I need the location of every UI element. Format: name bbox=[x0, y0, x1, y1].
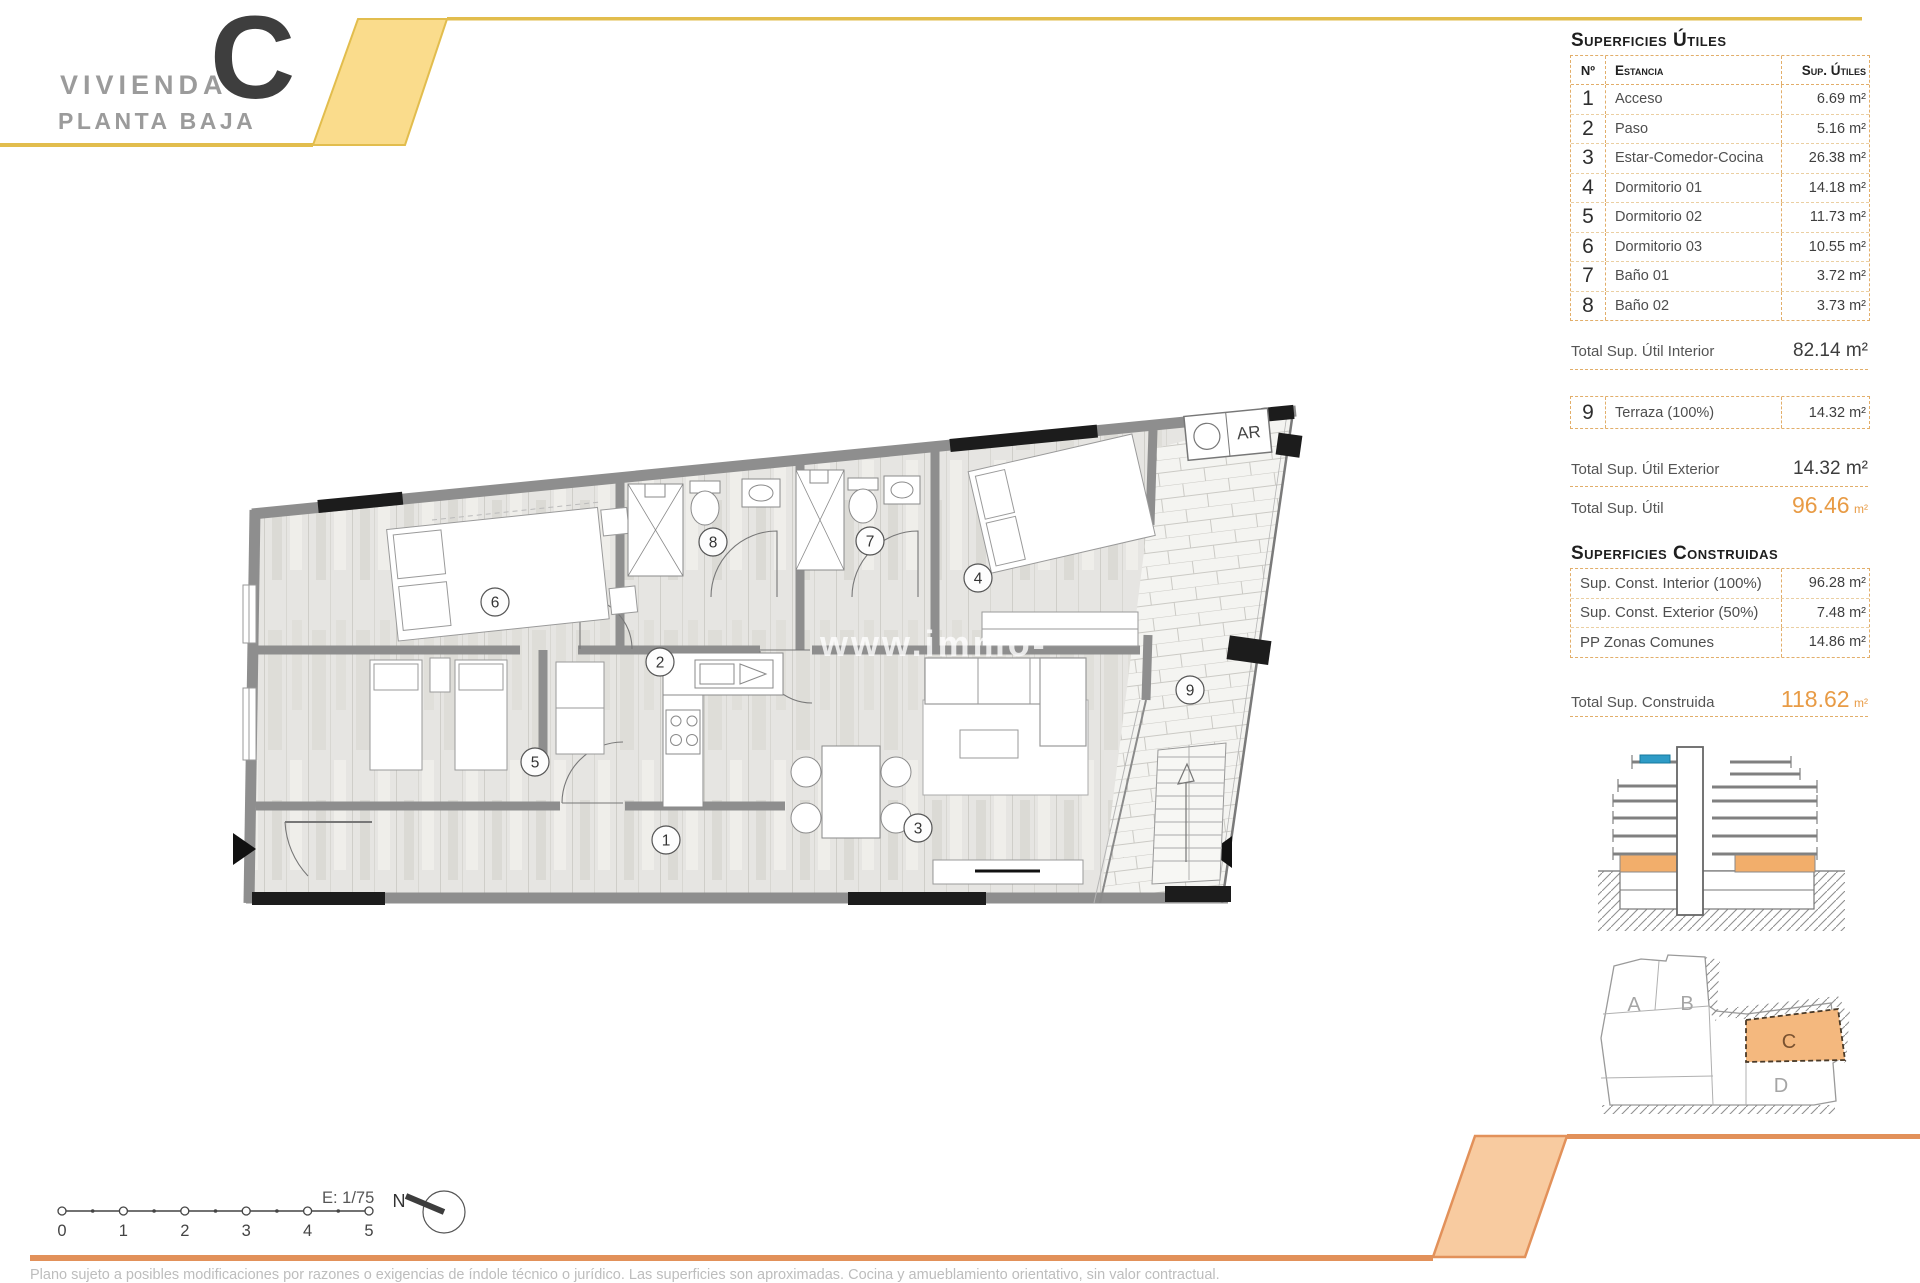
built-area: 14.86 m² bbox=[1781, 628, 1869, 657]
terrace-stairs bbox=[1152, 743, 1226, 884]
room-name: Estar-Comedor-Cocina bbox=[1606, 150, 1781, 166]
room-area: 14.18 m² bbox=[1781, 174, 1869, 203]
room-area: 14.32 m² bbox=[1781, 397, 1869, 428]
table-row: 2 Paso 5.16 m² bbox=[1571, 115, 1869, 145]
room-number: 7 bbox=[1571, 262, 1606, 291]
orange-right-line bbox=[1567, 1134, 1920, 1139]
room-area: 11.73 m² bbox=[1781, 203, 1869, 232]
left-tower-slabs bbox=[1613, 762, 1677, 854]
table-row: 6 Dormitorio 03 10.55 m² bbox=[1571, 233, 1869, 263]
total-built-row: Total Sup. Construida 118.62 m² bbox=[1571, 686, 1868, 713]
room-area: 3.73 m² bbox=[1781, 292, 1869, 321]
room-number: 9 bbox=[1571, 397, 1606, 428]
table-row: Sup. Const. Interior (100%) 96.28 m² bbox=[1571, 569, 1869, 599]
room-label-1: 1 bbox=[652, 826, 680, 854]
total-interior-label: Total Sup. Útil Interior bbox=[1571, 343, 1714, 360]
divider bbox=[1570, 369, 1868, 370]
table-row: 5 Dormitorio 02 11.73 m² bbox=[1571, 203, 1869, 233]
room-number: 8 bbox=[1571, 292, 1606, 321]
svg-text:2: 2 bbox=[180, 1222, 189, 1240]
built-table-title: Superficies Construidas bbox=[1571, 543, 1778, 565]
built-area: 7.48 m² bbox=[1781, 599, 1869, 628]
ar-label: AR bbox=[1236, 422, 1261, 443]
room-label-3: 3 bbox=[904, 814, 932, 842]
gold-underline bbox=[0, 143, 313, 147]
room-area: 6.69 m² bbox=[1781, 85, 1869, 114]
site-unit-a-label: A bbox=[1627, 994, 1641, 1016]
total-exterior-row: Total Sup. Útil Exterior 14.32 m² bbox=[1571, 458, 1868, 480]
site-unit-d-label: D bbox=[1774, 1075, 1788, 1097]
room-number: 4 bbox=[1571, 174, 1606, 203]
svg-text:3: 3 bbox=[914, 821, 923, 838]
table-row: 9 Terraza (100%) 14.32 m² bbox=[1571, 397, 1869, 428]
beds-room5 bbox=[370, 658, 604, 770]
svg-text:1: 1 bbox=[119, 1222, 128, 1240]
gold-top-line bbox=[447, 17, 1862, 21]
total-useful-value: 96.46 m² bbox=[1792, 492, 1868, 519]
core-shaft bbox=[1677, 747, 1703, 915]
svg-text:1: 1 bbox=[662, 833, 671, 850]
room-area: 10.55 m² bbox=[1781, 233, 1869, 262]
terrace-row-box: 9 Terraza (100%) 14.32 m² bbox=[1570, 396, 1870, 429]
room-number: 3 bbox=[1571, 144, 1606, 173]
built-name: Sup. Const. Interior (100%) bbox=[1571, 575, 1781, 592]
scale-label: E: 1/75 bbox=[322, 1189, 374, 1207]
col-num: Nº bbox=[1571, 56, 1606, 84]
total-exterior-value: 14.32 m² bbox=[1793, 458, 1868, 480]
floor-plan: AR www.immo- 1 2 3 4 5 6 7 8 9 bbox=[233, 405, 1302, 905]
orange-bottom-bar bbox=[30, 1255, 1433, 1261]
room-area: 5.16 m² bbox=[1781, 115, 1869, 144]
built-name: Sup. Const. Exterior (50%) bbox=[1571, 604, 1781, 621]
room-label-4: 4 bbox=[964, 564, 992, 592]
table-row: 8 Baño 02 3.73 m² bbox=[1571, 292, 1869, 321]
gold-parallelogram bbox=[313, 19, 447, 145]
room-label-9: 9 bbox=[1176, 676, 1204, 704]
compass-needle bbox=[406, 1196, 444, 1212]
table-row: 4 Dormitorio 01 14.18 m² bbox=[1571, 174, 1869, 204]
site-unit-c-label: C bbox=[1782, 1031, 1796, 1053]
total-built-value: 118.62 m² bbox=[1781, 686, 1868, 713]
room-name: Dormitorio 01 bbox=[1606, 180, 1781, 196]
room-name: Paso bbox=[1606, 121, 1781, 137]
useful-table: Nº Estancia Sup. Útiles 1 Acceso 6.69 m²… bbox=[1570, 55, 1870, 321]
highlight-floor-left bbox=[1620, 855, 1677, 872]
sofa-living bbox=[923, 658, 1088, 795]
svg-text:5: 5 bbox=[364, 1222, 373, 1240]
svg-text:4: 4 bbox=[303, 1222, 312, 1240]
svg-text:6: 6 bbox=[491, 595, 500, 612]
table-header: Nº Estancia Sup. Útiles bbox=[1571, 56, 1869, 85]
built-area: 96.28 m² bbox=[1781, 569, 1869, 598]
room-label-8: 8 bbox=[699, 528, 727, 556]
room-number: 6 bbox=[1571, 233, 1606, 262]
total-useful-row: Total Sup. Útil 96.46 m² bbox=[1571, 492, 1868, 519]
svg-text:0: 0 bbox=[57, 1222, 66, 1240]
site-plan: A B C D bbox=[1601, 955, 1850, 1114]
logo-title: VIVIENDA bbox=[60, 70, 228, 101]
svg-text:3: 3 bbox=[242, 1222, 251, 1240]
table-row: 1 Acceso 6.69 m² bbox=[1571, 85, 1869, 115]
table-row: Sup. Const. Exterior (50%) 7.48 m² bbox=[1571, 599, 1869, 629]
room-name: Acceso bbox=[1606, 91, 1781, 107]
col-room: Estancia bbox=[1606, 63, 1781, 78]
useful-table-title: Superficies Útiles bbox=[1571, 30, 1727, 52]
col-area: Sup. Útiles bbox=[1781, 56, 1869, 84]
total-interior-value: 82.14 m² bbox=[1793, 340, 1868, 362]
site-unit-b-label: B bbox=[1680, 993, 1693, 1015]
room-name: Dormitorio 02 bbox=[1606, 209, 1781, 225]
right-tower-ticks bbox=[1791, 756, 1817, 860]
room-name: Terraza (100%) bbox=[1606, 405, 1781, 421]
orange-parallelogram bbox=[1433, 1136, 1567, 1257]
building-section bbox=[1598, 747, 1845, 931]
watermark: www.immo- bbox=[819, 623, 1048, 664]
svg-text:2: 2 bbox=[656, 655, 665, 672]
total-built-label: Total Sup. Construida bbox=[1571, 694, 1714, 711]
table-row: 3 Estar-Comedor-Cocina 26.38 m² bbox=[1571, 144, 1869, 174]
room-name: Baño 02 bbox=[1606, 298, 1781, 314]
unit-letter: C bbox=[210, 10, 295, 107]
room-number: 1 bbox=[1571, 85, 1606, 114]
room-number: 5 bbox=[1571, 203, 1606, 232]
total-interior-row: Total Sup. Útil Interior 82.14 m² bbox=[1571, 340, 1868, 362]
room-number: 2 bbox=[1571, 115, 1606, 144]
room-label-7: 7 bbox=[856, 527, 884, 555]
table-row: PP Zonas Comunes 14.86 m² bbox=[1571, 628, 1869, 657]
scale-ticks: 0 1 2 3 4 5 bbox=[57, 1222, 373, 1240]
north-arrow: N bbox=[393, 1191, 466, 1233]
total-useful-label: Total Sup. Útil bbox=[1571, 500, 1664, 517]
divider bbox=[1570, 486, 1868, 487]
svg-text:8: 8 bbox=[709, 535, 718, 552]
right-tower-slabs bbox=[1712, 762, 1817, 854]
built-name: PP Zonas Comunes bbox=[1571, 634, 1781, 651]
svg-text:7: 7 bbox=[866, 534, 875, 551]
pool-icon bbox=[1640, 755, 1670, 763]
built-table: Sup. Const. Interior (100%) 96.28 m² Sup… bbox=[1570, 568, 1870, 658]
table-row: 7 Baño 01 3.72 m² bbox=[1571, 262, 1869, 292]
ar-closet: AR bbox=[1184, 408, 1272, 460]
disclaimer-text: Plano sujeto a posibles modificaciones p… bbox=[30, 1267, 1220, 1283]
room-label-6: 6 bbox=[481, 588, 509, 616]
svg-text:5: 5 bbox=[531, 755, 540, 772]
total-exterior-label: Total Sup. Útil Exterior bbox=[1571, 461, 1719, 478]
svg-text:9: 9 bbox=[1186, 683, 1195, 700]
svg-text:4: 4 bbox=[974, 571, 983, 588]
highlight-floor-right bbox=[1735, 855, 1815, 872]
north-label: N bbox=[393, 1191, 406, 1211]
room-label-5: 5 bbox=[521, 748, 549, 776]
tv-unit bbox=[933, 860, 1083, 884]
room-name: Dormitorio 03 bbox=[1606, 239, 1781, 255]
room-area: 26.38 m² bbox=[1781, 144, 1869, 173]
divider bbox=[1570, 716, 1868, 717]
room-label-2: 2 bbox=[646, 648, 674, 676]
room-area: 3.72 m² bbox=[1781, 262, 1869, 291]
scale-bar: E: 1/75 0 1 2 3 4 5 bbox=[57, 1189, 374, 1240]
room-name: Baño 01 bbox=[1606, 268, 1781, 284]
left-tower-ticks bbox=[1613, 755, 1632, 860]
